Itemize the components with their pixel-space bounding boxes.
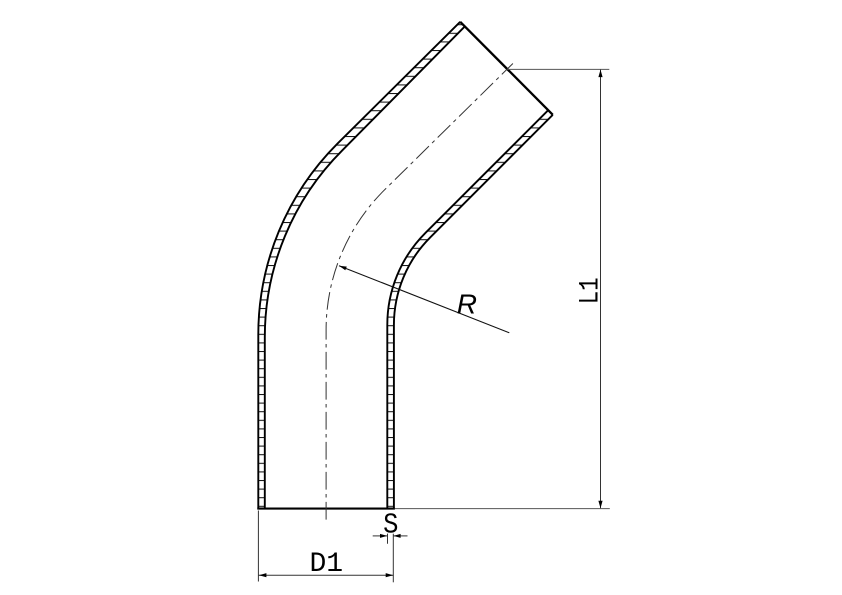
svg-text:S: S bbox=[383, 509, 398, 542]
svg-text:L1: L1 bbox=[574, 277, 606, 304]
svg-text:D1: D1 bbox=[309, 549, 343, 580]
svg-text:R: R bbox=[457, 288, 477, 319]
